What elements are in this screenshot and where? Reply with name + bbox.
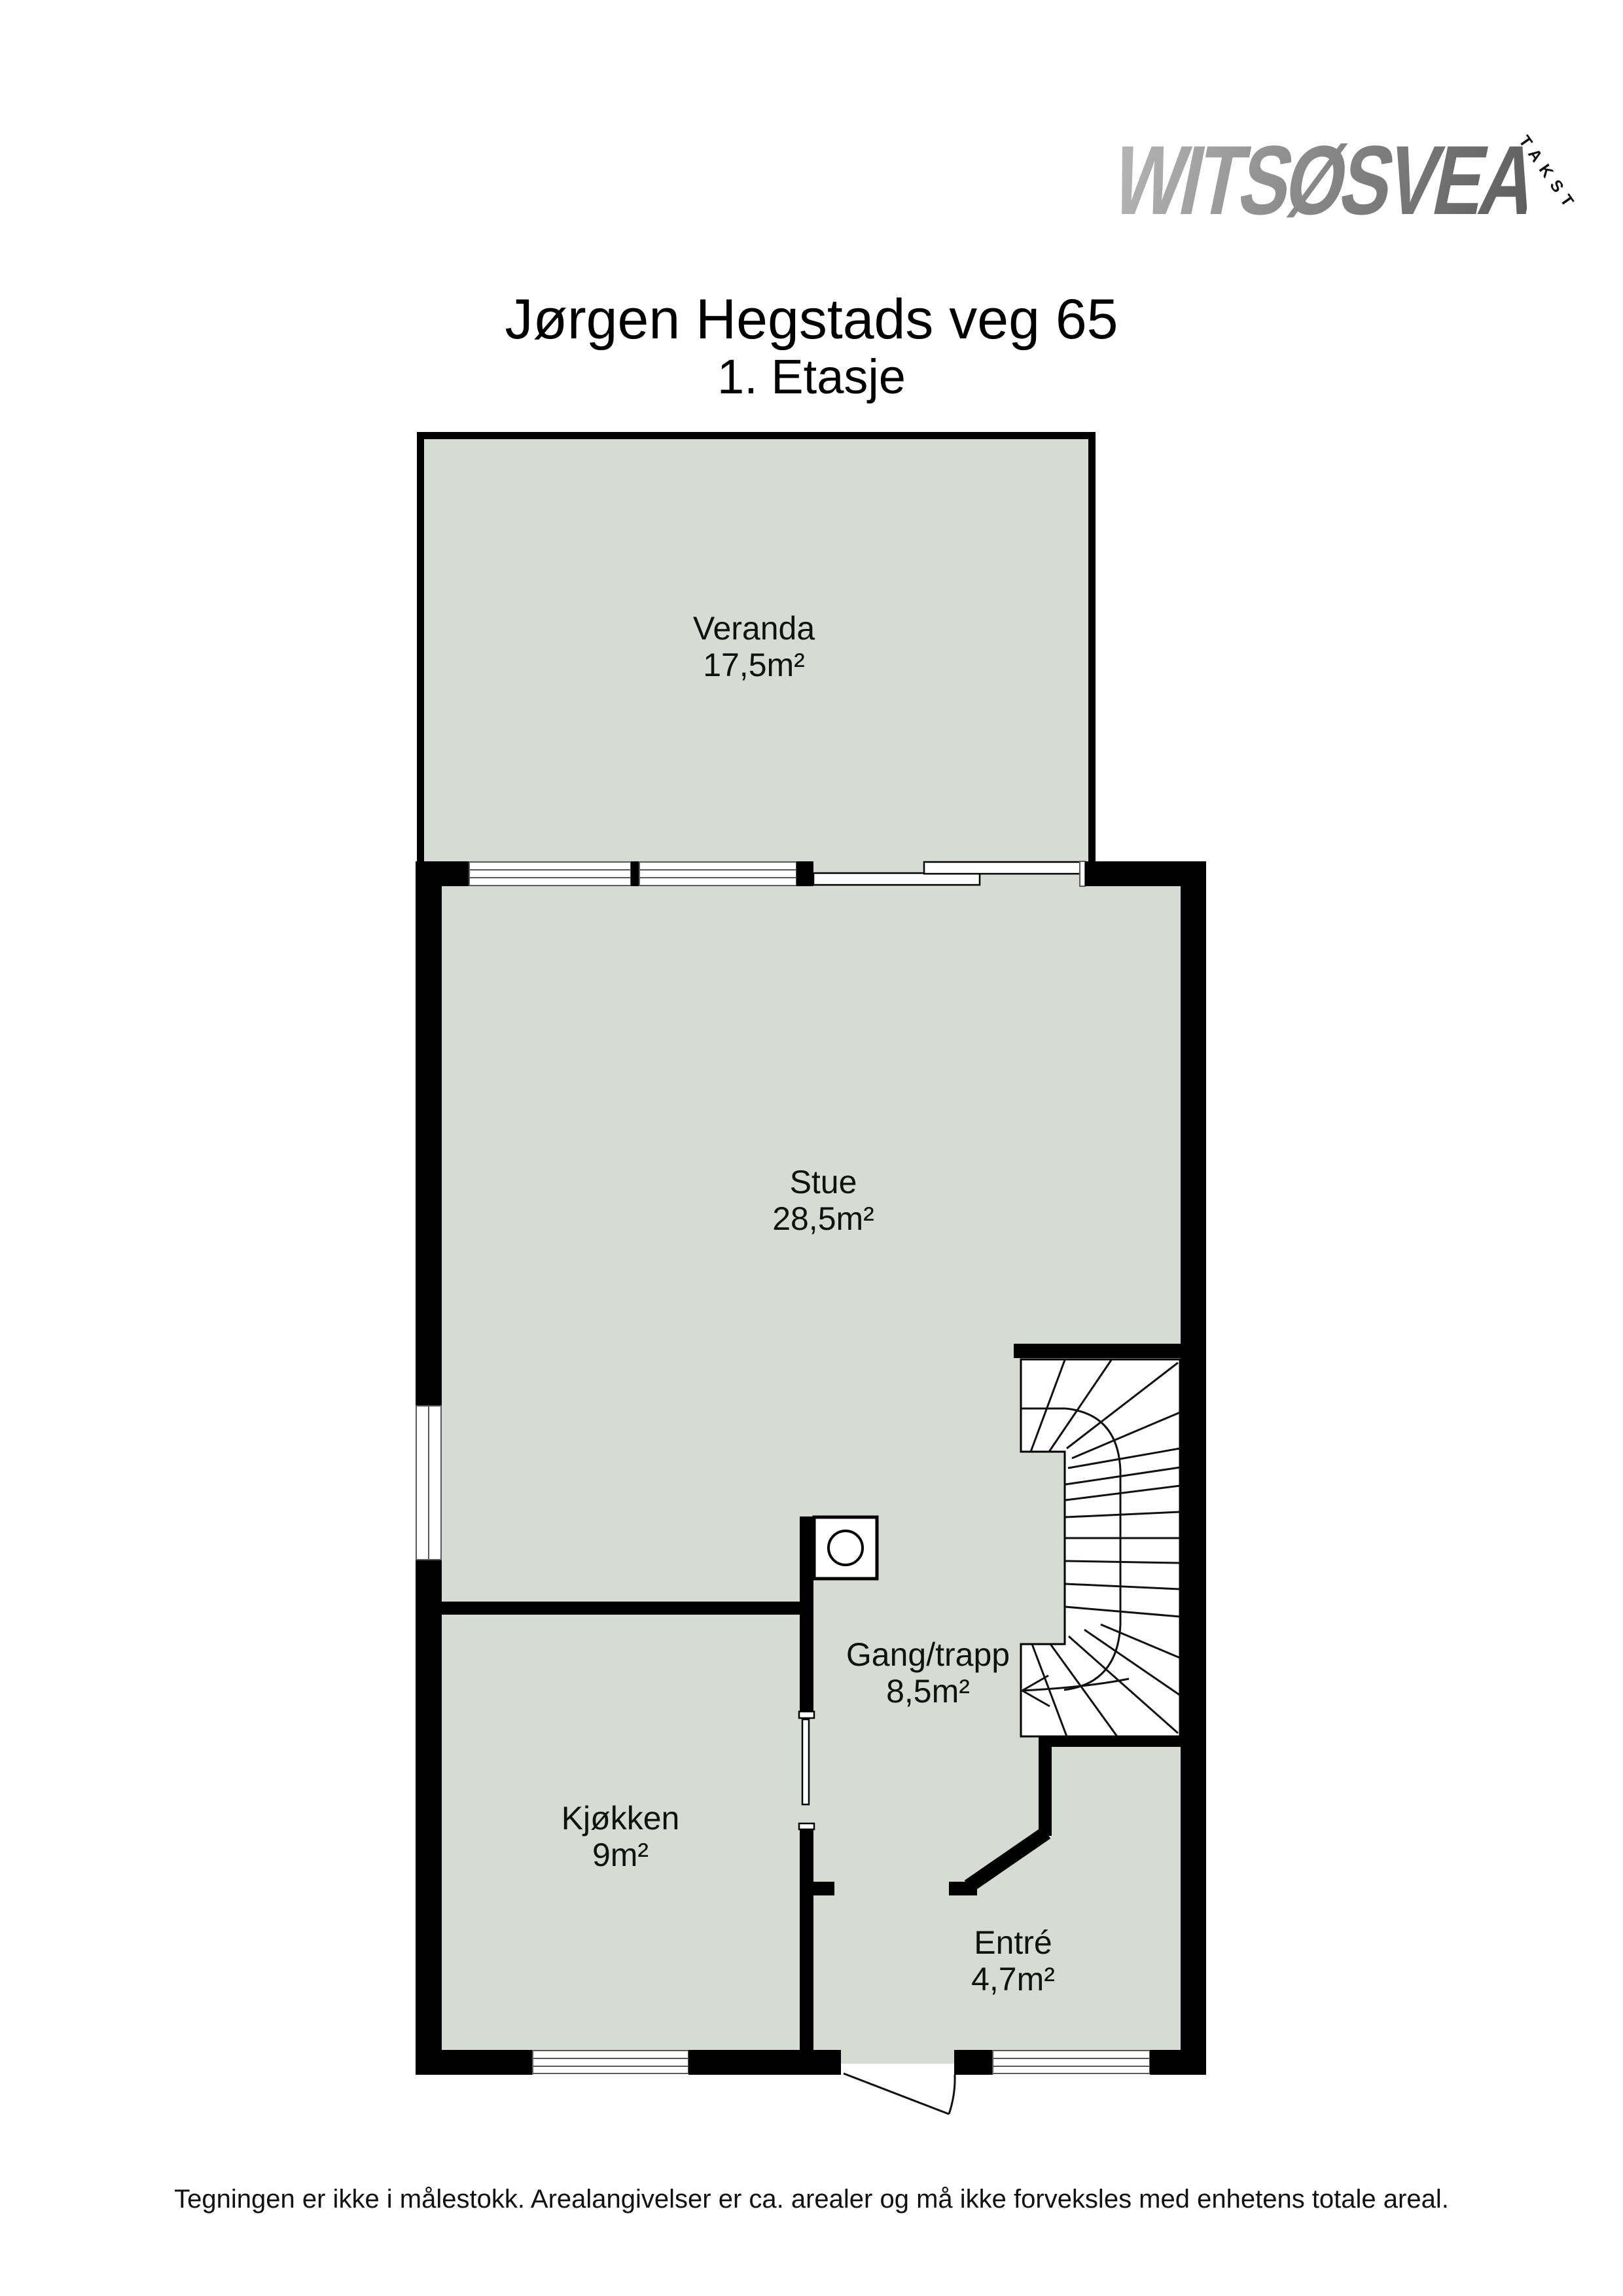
veranda-wall-top xyxy=(417,432,1096,439)
interior-door-leaf xyxy=(802,1719,809,1804)
wall-segment xyxy=(954,2050,993,2075)
room-name: Veranda xyxy=(693,610,815,647)
room-label-veranda: Veranda 17,5m² xyxy=(693,610,815,683)
floorplan-drawing xyxy=(0,0,1623,2296)
wall-segment xyxy=(688,2050,841,2075)
room-area: 9m² xyxy=(562,1837,680,1873)
wall-stub xyxy=(813,1882,834,1895)
stove-plate xyxy=(829,1531,863,1565)
room-area: 4,7m² xyxy=(971,1961,1055,1998)
sliding-door-jamb xyxy=(1080,861,1085,886)
room-label-stue: Stue 28,5m² xyxy=(772,1164,874,1237)
window xyxy=(639,862,796,886)
entrance-door-leaf xyxy=(844,2073,949,2114)
sliding-door-panel xyxy=(924,862,1085,874)
veranda-wall-left xyxy=(417,439,424,861)
room-area: 17,5m² xyxy=(693,647,815,683)
wall-stub xyxy=(949,1882,977,1895)
sliding-door-panel xyxy=(813,873,980,885)
wall-kitchen-gang-upper xyxy=(800,1516,813,1713)
wall-stair-top xyxy=(1014,1344,1181,1358)
room-name: Stue xyxy=(772,1164,874,1200)
door-jamb xyxy=(799,1823,814,1829)
entrance-door-threshold xyxy=(841,2050,954,2064)
room-name: Entré xyxy=(971,1924,1055,1961)
room-name: Gang/trapp xyxy=(846,1636,1010,1673)
wall-kitchen-stue xyxy=(442,1602,813,1615)
window xyxy=(993,2051,1150,2073)
window xyxy=(533,2051,688,2073)
window-mullion xyxy=(631,861,639,886)
room-label-gang: Gang/trapp 8,5m² xyxy=(846,1636,1010,1710)
wall-segment xyxy=(796,861,813,886)
window xyxy=(469,862,631,886)
wall-stair-bottom xyxy=(1039,1736,1181,1747)
room-area: 8,5m² xyxy=(846,1673,1010,1710)
wall-entre-vertical xyxy=(1039,1736,1052,1836)
floorplan-page: WITSØSVEA TAKST Jørgen Hegstads veg 65 1… xyxy=(0,0,1623,2296)
stove xyxy=(814,1517,877,1579)
wall-segment xyxy=(1150,2050,1206,2075)
entrance-door-swing xyxy=(949,2075,955,2114)
room-area: 28,5m² xyxy=(772,1200,874,1237)
wall-segment xyxy=(416,2050,533,2075)
veranda-wall-right xyxy=(1088,439,1096,861)
wall-kitchen-gang-lower xyxy=(800,1829,813,2050)
door-jamb xyxy=(799,1712,814,1718)
room-name: Kjøkken xyxy=(562,1800,680,1837)
room-label-kjokken: Kjøkken 9m² xyxy=(562,1800,680,1873)
exterior-wall-right xyxy=(1181,861,1206,2075)
disclaimer-text: Tegningen er ikke i målestokk. Arealangi… xyxy=(0,2185,1623,2214)
room-label-entre: Entré 4,7m² xyxy=(971,1924,1055,1998)
